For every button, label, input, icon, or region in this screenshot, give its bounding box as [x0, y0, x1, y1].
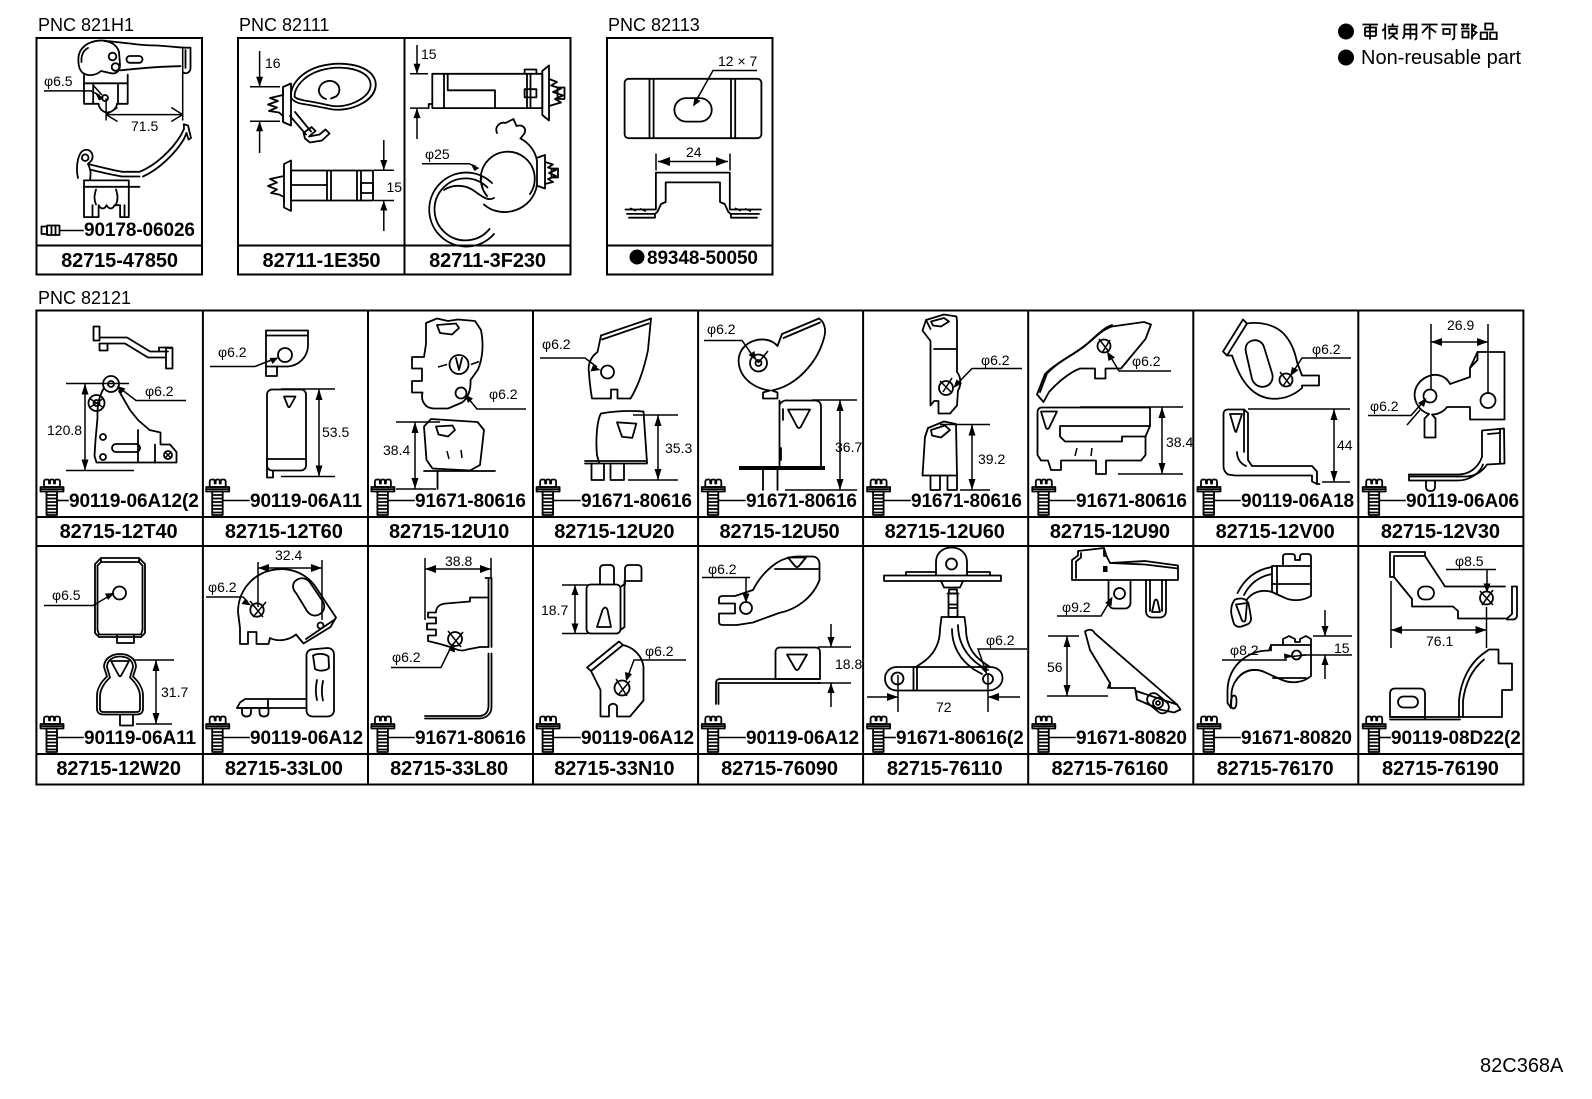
svg-text:PNC 82113: PNC 82113 [608, 15, 700, 35]
svg-text:91671-80616: 91671-80616 [415, 491, 526, 512]
svg-text:90119-06A18: 90119-06A18 [1241, 491, 1354, 512]
svg-text:82715-12U10: 82715-12U10 [389, 521, 509, 543]
svg-text:90178-06026: 90178-06026 [84, 220, 195, 241]
svg-text:72: 72 [936, 699, 952, 715]
svg-text:18.7: 18.7 [541, 602, 568, 618]
svg-text:82715-12T40: 82715-12T40 [60, 521, 178, 543]
svg-text:82715-33L80: 82715-33L80 [390, 758, 508, 780]
svg-text:90119-06A12: 90119-06A12 [250, 728, 363, 749]
svg-text:16: 16 [265, 55, 281, 71]
svg-text:89348-50050: 89348-50050 [647, 248, 758, 269]
svg-text:φ6.2: φ6.2 [145, 383, 174, 399]
svg-text:82715-47850: 82715-47850 [61, 250, 178, 272]
svg-text:82715-76190: 82715-76190 [1382, 758, 1499, 780]
svg-text:φ8.2: φ8.2 [1230, 642, 1259, 658]
svg-text:71.5: 71.5 [131, 118, 158, 134]
svg-text:44: 44 [1337, 437, 1353, 453]
svg-text:35.3: 35.3 [665, 440, 692, 456]
svg-text:82715-76110: 82715-76110 [887, 758, 1003, 780]
svg-text:PNC 821H1: PNC 821H1 [38, 15, 134, 35]
svg-text:91671-80616: 91671-80616 [911, 491, 1022, 512]
svg-text:82715-12U50: 82715-12U50 [719, 521, 839, 543]
svg-text:82715-76090: 82715-76090 [721, 758, 838, 780]
svg-text:φ6.2: φ6.2 [489, 386, 518, 402]
svg-text:90119-06A06: 90119-06A06 [1406, 491, 1519, 512]
svg-text:PNC 82111: PNC 82111 [239, 15, 329, 35]
svg-text:31.7: 31.7 [161, 684, 188, 700]
svg-text:38.8: 38.8 [445, 553, 472, 569]
svg-text:56: 56 [1047, 659, 1063, 675]
svg-text:φ6.2: φ6.2 [1370, 398, 1399, 414]
svg-text:PNC 82121: PNC 82121 [38, 288, 131, 308]
svg-text:24: 24 [686, 144, 702, 160]
svg-text:82C368A: 82C368A [1480, 1055, 1564, 1077]
svg-text:32.4: 32.4 [275, 547, 302, 563]
svg-text:91671-80616: 91671-80616 [746, 491, 857, 512]
svg-text:53.5: 53.5 [322, 424, 349, 440]
svg-text:91671-80820: 91671-80820 [1241, 728, 1352, 749]
svg-text:91671-80616: 91671-80616 [581, 491, 692, 512]
svg-text:12 × 7: 12 × 7 [718, 53, 758, 69]
svg-text:φ6.2: φ6.2 [707, 321, 736, 337]
svg-text:18.8: 18.8 [835, 656, 862, 672]
svg-text:φ6.5: φ6.5 [44, 73, 73, 89]
svg-text:15: 15 [387, 179, 403, 195]
svg-text:82715-12V30: 82715-12V30 [1381, 521, 1500, 543]
svg-text:90119-06A11: 90119-06A11 [250, 491, 362, 512]
svg-text:91671-80820: 91671-80820 [1076, 728, 1187, 749]
svg-text:36.7: 36.7 [835, 439, 862, 455]
svg-text:φ6.5: φ6.5 [52, 587, 81, 603]
svg-text:φ6.2: φ6.2 [1312, 341, 1341, 357]
svg-text:φ6.2: φ6.2 [208, 579, 237, 595]
svg-text:15: 15 [421, 46, 437, 62]
svg-text:φ6.2: φ6.2 [981, 352, 1010, 368]
svg-text:φ6.2: φ6.2 [218, 344, 247, 360]
svg-text:82715-12U90: 82715-12U90 [1050, 521, 1170, 543]
svg-text:φ6.2: φ6.2 [542, 336, 571, 352]
svg-text:φ6.2: φ6.2 [708, 561, 737, 577]
svg-text:90119-06A11: 90119-06A11 [84, 728, 196, 749]
svg-text:38.4: 38.4 [383, 442, 410, 458]
svg-text:26.9: 26.9 [1447, 317, 1474, 333]
svg-text:15: 15 [1334, 640, 1350, 656]
svg-text:91671-80616: 91671-80616 [415, 728, 526, 749]
svg-text:38.4: 38.4 [1166, 434, 1193, 450]
svg-text:82715-76160: 82715-76160 [1052, 758, 1169, 780]
svg-text:82715-12V00: 82715-12V00 [1216, 521, 1335, 543]
svg-text:82715-12U60: 82715-12U60 [885, 521, 1005, 543]
svg-text:82715-33N10: 82715-33N10 [554, 758, 674, 780]
svg-text:φ25: φ25 [425, 146, 450, 162]
svg-text:90119-06A12: 90119-06A12 [746, 728, 859, 749]
svg-text:82711-3F230: 82711-3F230 [429, 250, 546, 272]
svg-text:90119-06A12: 90119-06A12 [581, 728, 694, 749]
svg-text:Non-reusable part: Non-reusable part [1361, 47, 1522, 69]
svg-text:φ6.2: φ6.2 [986, 632, 1015, 648]
svg-text:82715-76170: 82715-76170 [1217, 758, 1334, 780]
svg-text:φ6.2: φ6.2 [392, 649, 421, 665]
svg-text:90119-06A12(2: 90119-06A12(2 [69, 491, 199, 512]
svg-text:82711-1E350: 82711-1E350 [263, 250, 381, 272]
svg-text:φ6.2: φ6.2 [1132, 353, 1161, 369]
svg-text:φ8.5: φ8.5 [1455, 553, 1484, 569]
svg-text:91671-80616(2: 91671-80616(2 [896, 728, 1024, 749]
svg-text:39.2: 39.2 [978, 451, 1005, 467]
svg-text:82715-12T60: 82715-12T60 [225, 521, 343, 543]
svg-text:91671-80616: 91671-80616 [1076, 491, 1187, 512]
svg-text:120.8: 120.8 [47, 422, 82, 438]
svg-text:90119-08D22(2: 90119-08D22(2 [1391, 728, 1521, 749]
svg-text:82715-33L00: 82715-33L00 [225, 758, 343, 780]
svg-text:76.1: 76.1 [1426, 633, 1453, 649]
svg-text:φ6.2: φ6.2 [645, 643, 674, 659]
svg-text:82715-12U20: 82715-12U20 [554, 521, 674, 543]
svg-text:82715-12W20: 82715-12W20 [56, 758, 181, 780]
svg-text:φ9.2: φ9.2 [1062, 599, 1091, 615]
